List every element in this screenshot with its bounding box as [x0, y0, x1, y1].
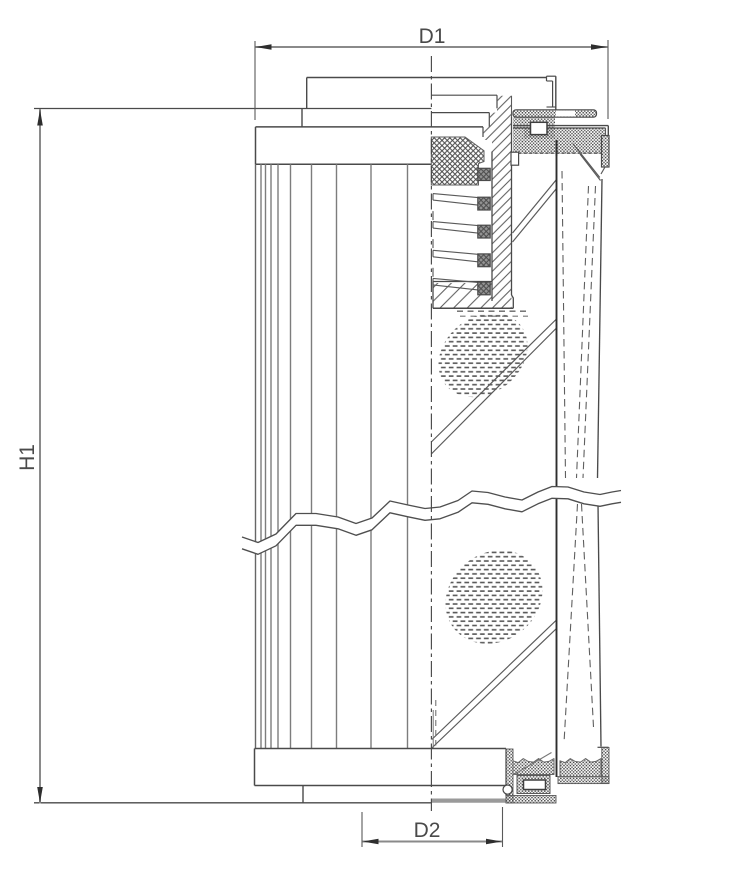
svg-text:H1: H1: [16, 444, 39, 471]
svg-text:D1: D1: [419, 25, 446, 48]
svg-text:D2: D2: [414, 819, 441, 842]
